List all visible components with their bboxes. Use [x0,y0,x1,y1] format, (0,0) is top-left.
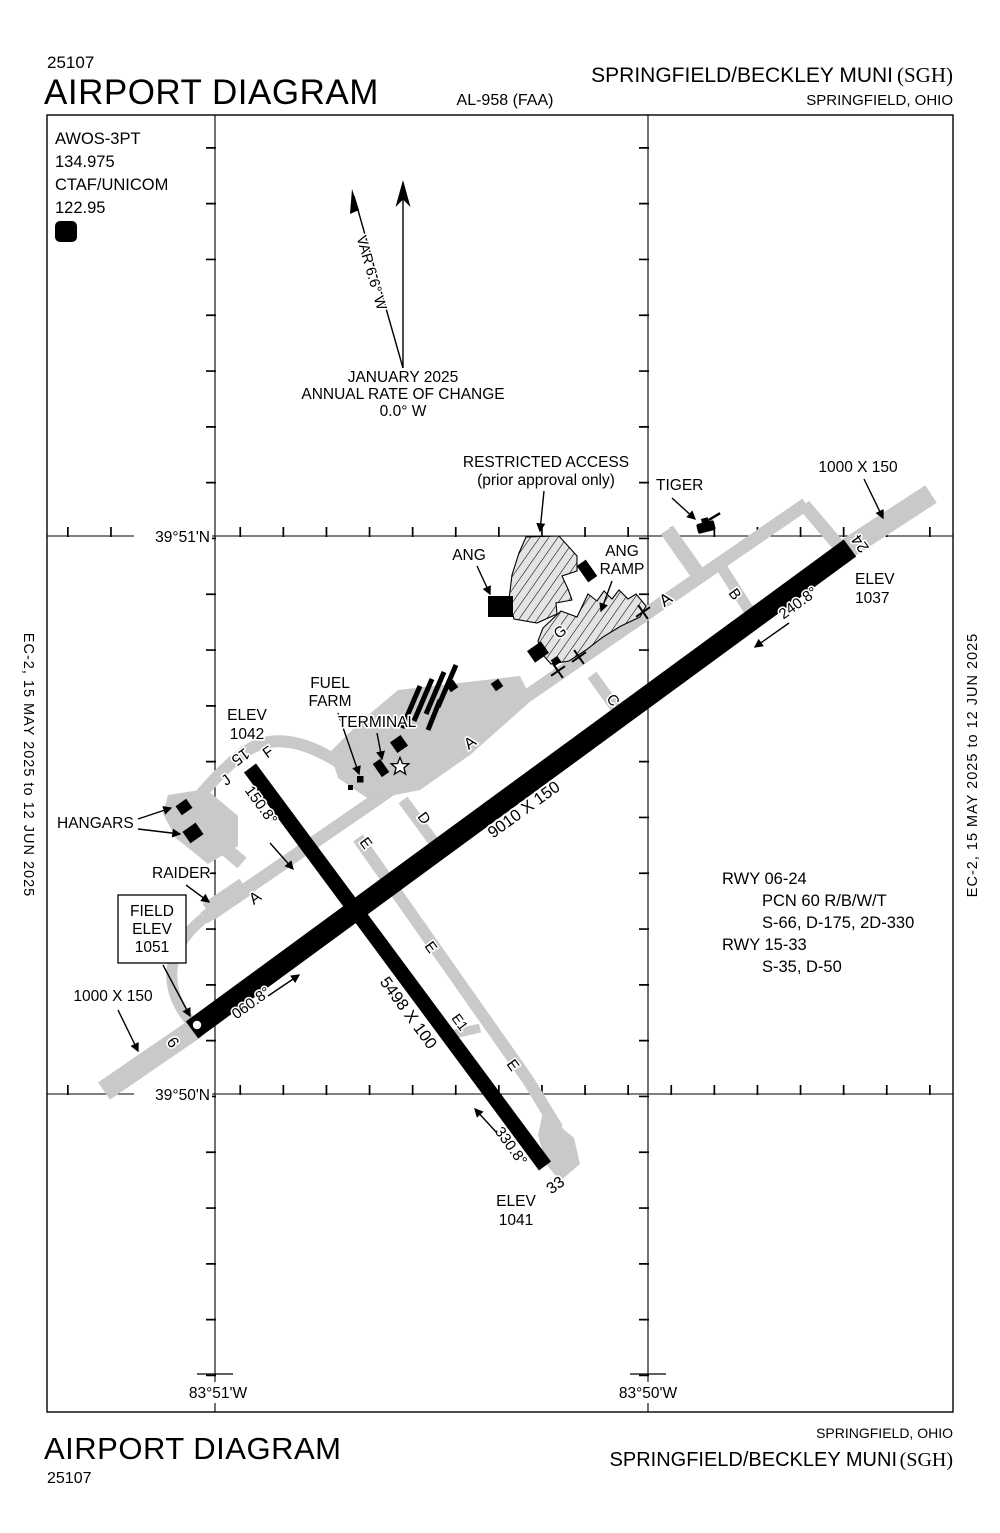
restricted-access-sublabel: (prior approval only) [477,472,615,489]
ang-ramp-label: ANG [605,543,639,560]
lat-label-top: 39°51'N [155,529,210,546]
field-elev-label2: ELEV [132,921,172,938]
airport-diagram-chart: 25107 AIRPORT DIAGRAM AL-958 (FAA) SPRIN… [0,0,1000,1533]
fuel-farm-label2: FARM [308,693,351,710]
airport-diagram-page: 25107 AIRPORT DIAGRAM AL-958 (FAA) SPRIN… [0,0,1000,1533]
header: 25107 AIRPORT DIAGRAM AL-958 (FAA) SPRIN… [44,53,953,112]
comm-line-4: 122.95 [55,199,105,217]
footer-airport-name: SPRINGFIELD/BECKLEY MUNI [610,1449,897,1471]
comm-line-1: AWOS-3PT [55,130,141,148]
header-al-number: AL-958 (FAA) [457,92,554,109]
edition-text-left: EC-2, 15 MAY 2025 to 12 JUN 2025 [20,633,36,897]
footer-city: SPRINGFIELD, OHIO [816,1425,953,1441]
header-city: SPRINGFIELD, OHIO [806,92,953,109]
grid-labels: 39°51'N 39°50'N 83°51'W 83°50'W [134,526,691,1403]
rwy-info-line: S-35, D-50 [762,958,842,976]
fuel-farm-tank-2 [348,785,353,790]
variation-label: VAR 6.6° W [353,234,390,312]
fuel-farm-tank-1 [357,776,364,783]
rwy-info-line: S-66, D-175, 2D-330 [762,914,914,932]
terminal-label: TERMINAL [338,714,417,731]
overrun-rwy06 [104,1028,196,1091]
header-chart-number: 25107 [47,53,94,72]
lon-label-right: 83°50'W [619,1385,678,1402]
rwy33-number: 33 [544,1174,568,1198]
field-elevation-dot [193,1021,201,1029]
field-elev-label1: FIELD [130,903,174,920]
taxiway-j-label: J [218,771,234,789]
header-airport-name: SPRINGFIELD/BECKLEY MUNI [591,64,893,87]
edition-text-right: EC-2, 15 MAY 2025 to 12 JUN 2025 [965,633,981,897]
annual-rate-value: 0.0° W [380,403,427,420]
footer: AIRPORT DIAGRAM 25107 SPRINGFIELD, OHIO … [44,1425,953,1487]
tiger-label: TIGER [656,477,703,494]
rwy-info-line: RWY 15-33 [722,936,807,954]
restricted-access-label: RESTRICTED ACCESS [463,454,629,471]
tiger-icon [695,513,724,534]
rwy-info-line: RWY 06-24 [722,870,807,888]
elev-1037-value: 1037 [855,590,889,607]
ang-ramp-building [577,560,597,583]
header-airport-icao: (SGH) [897,63,953,87]
ang-ramp-label2: RAMP [600,561,645,578]
elev-1042-label: ELEV [227,707,267,724]
rwy-info-line: PCN 60 R/B/W/T [762,892,887,910]
comm-line-3: CTAF/UNICOM [55,176,168,194]
adf-d-symbol-letter: D [61,224,72,241]
elev-1037-label: ELEV [855,571,895,588]
annual-rate-label: ANNUAL RATE OF CHANGE [301,386,504,403]
header-title: AIRPORT DIAGRAM [44,73,379,112]
overrun-sw-label: 1000 X 150 [73,988,153,1005]
raider-apron [208,887,245,912]
ang-building [488,596,513,617]
elev-1042-value: 1042 [230,726,264,743]
footer-title: AIRPORT DIAGRAM [44,1431,341,1466]
hangars-label: HANGARS [57,815,134,832]
restricted-access-ramp [509,536,577,623]
lat-label-bottom: 39°50'N [155,1087,210,1104]
fuel-farm-label: FUEL [310,675,350,692]
footer-airport-icao: (SGH) [900,1449,953,1471]
ang-label: ANG [452,547,486,564]
field-elev-value: 1051 [135,939,169,956]
elev-1041-value: 1041 [499,1212,533,1229]
footer-chart-number: 25107 [47,1470,92,1487]
runway-data-block: RWY 06-24 PCN 60 R/B/W/T S-66, D-175, 2D… [722,870,914,976]
lon-label-left: 83°51'W [189,1385,248,1402]
tiger-stub [667,530,700,577]
elev-1041-label: ELEV [496,1193,536,1210]
magvar-date: JANUARY 2025 [348,369,459,386]
comm-line-2: 134.975 [55,153,115,171]
comm-box: AWOS-3PT 134.975 CTAF/UNICOM 122.95 D [55,130,168,242]
raider-label: RAIDER [152,865,211,882]
north-arrow-group: VAR 6.6° W JANUARY 2025 ANNUAL RATE OF C… [301,180,504,420]
overrun-ne-label: 1000 X 150 [818,459,898,476]
